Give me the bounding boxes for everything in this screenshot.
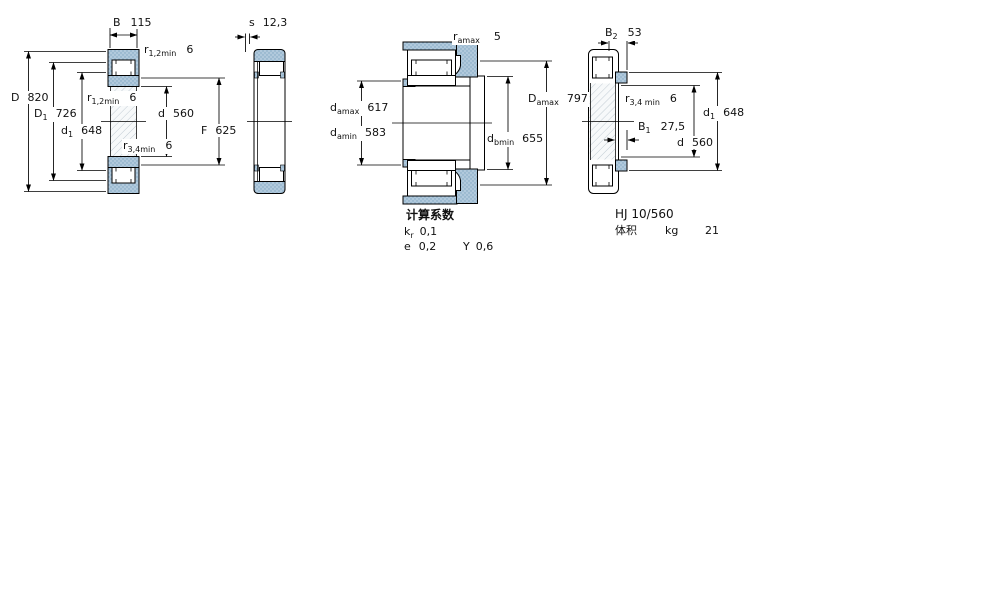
- side-view-drawing: [235, 34, 292, 194]
- dim-label-s: s12,3: [248, 16, 288, 29]
- dim-label-d1: d1648: [60, 124, 103, 139]
- dim-label-r12-top: r1,2min6: [143, 43, 194, 58]
- technical-drawing: [0, 0, 1000, 600]
- dim-label-r12-mid: r1,2min6: [86, 91, 137, 106]
- calc-factor-Y: Y0,6: [462, 240, 494, 253]
- dim-label-d1-ring: d1648: [702, 106, 745, 121]
- dim-label-damin: damin583: [329, 126, 387, 141]
- dim-label-B1: B127,5: [637, 120, 686, 135]
- calc-factor-e: e0,2: [403, 240, 437, 253]
- dim-label-B: B115: [112, 16, 153, 29]
- dim-label-r34-ring: r3,4 min6: [624, 92, 678, 107]
- ring-designation: HJ 10/560: [614, 208, 675, 221]
- dim-label-r34: r3,4min6: [122, 139, 173, 154]
- dim-label-ramax: ramax5: [452, 30, 502, 45]
- dim-label-B2: B253: [604, 26, 643, 41]
- ring-mass-value: 21: [704, 224, 720, 237]
- dim-label-D: D820: [10, 91, 49, 104]
- ring-mass-label: 体积: [614, 224, 638, 237]
- dim-label-damax: damax617: [329, 101, 389, 116]
- dim-label-d-ring: d560: [676, 136, 714, 149]
- side-dimension-lines: [235, 34, 260, 53]
- ring-view-drawing: [582, 39, 722, 194]
- mounted-view-drawing: [357, 42, 552, 204]
- dim-label-d: d560: [157, 107, 195, 120]
- calc-factors-heading: 计算系数: [405, 209, 455, 222]
- calc-factor-kr: kr0,1: [403, 225, 438, 240]
- dim-label-dbmin: dbmin655: [486, 132, 544, 147]
- ring-mass-unit: kg: [664, 224, 679, 237]
- dim-label-D1: D1726: [33, 107, 78, 122]
- bearing-drawing-page: B115 r1,2min6 D820 D1726 d1648 r1,2min6 …: [0, 0, 1000, 600]
- dim-label-F: F625: [200, 124, 237, 137]
- dim-label-Damax: Damax797: [527, 92, 589, 107]
